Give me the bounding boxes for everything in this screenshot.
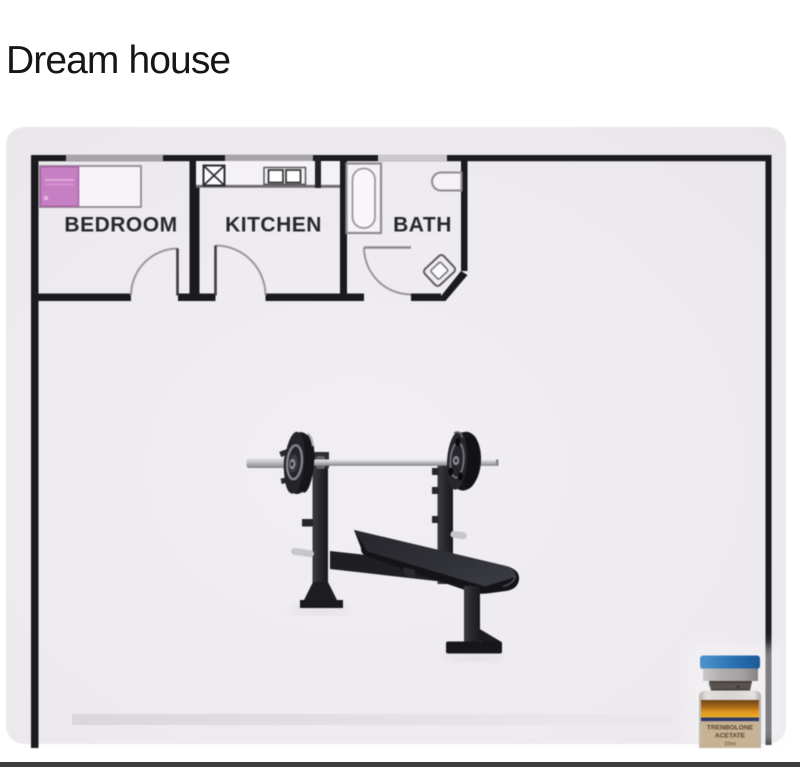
svg-text:TRENBOLONE: TRENBOLONE [707,725,754,732]
svg-text:BATH: BATH [393,214,452,237]
svg-text:BEDROOM: BEDROOM [64,214,177,237]
svg-text:ACETATE: ACETATE [715,733,746,740]
svg-text:KITCHEN: KITCHEN [225,214,322,237]
svg-text:10ml: 10ml [724,742,735,748]
